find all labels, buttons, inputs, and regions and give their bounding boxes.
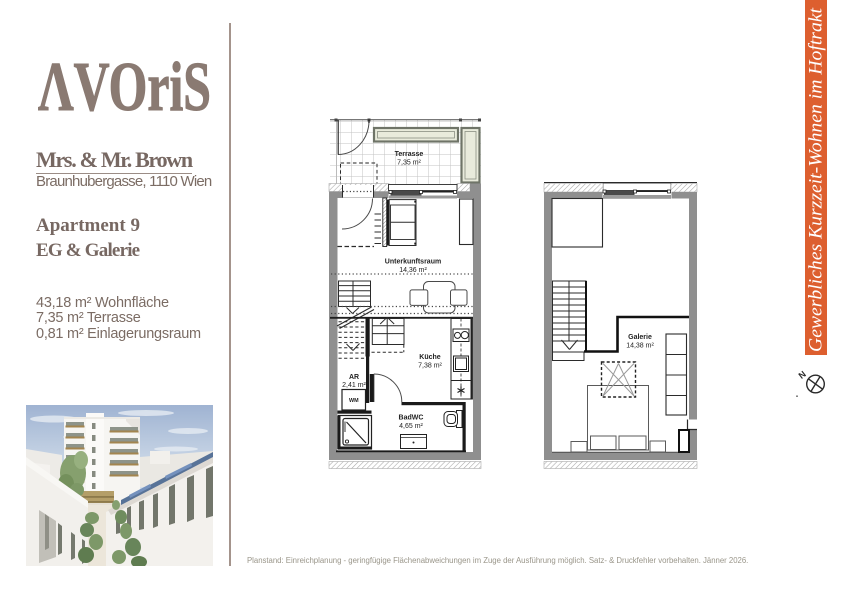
svg-text:7,38 m²: 7,38 m² [418, 362, 442, 369]
svg-text:AR: AR [349, 374, 359, 381]
svg-text:Unterkunftsraum: Unterkunftsraum [385, 259, 441, 266]
svg-text:14,36 m²: 14,36 m² [399, 267, 427, 274]
svg-text:14,38 m²: 14,38 m² [626, 343, 654, 350]
svg-text:7,35 m²: 7,35 m² [397, 160, 421, 167]
svg-text:WM: WM [349, 398, 359, 404]
svg-text:Terrasse: Terrasse [395, 151, 424, 158]
svg-text:BadWC: BadWC [399, 414, 424, 421]
svg-text:Galerie: Galerie [628, 334, 652, 341]
svg-text:Gewerbliches Kurzzeit-Wohnen i: Gewerbliches Kurzzeit-Wohnen im Hoftrakt [807, 7, 827, 352]
svg-text:N: N [797, 369, 808, 381]
svg-text:2,41 m²: 2,41 m² [342, 382, 366, 389]
svg-text:Küche: Küche [419, 354, 441, 361]
svg-text:4,65 m²: 4,65 m² [399, 423, 423, 430]
